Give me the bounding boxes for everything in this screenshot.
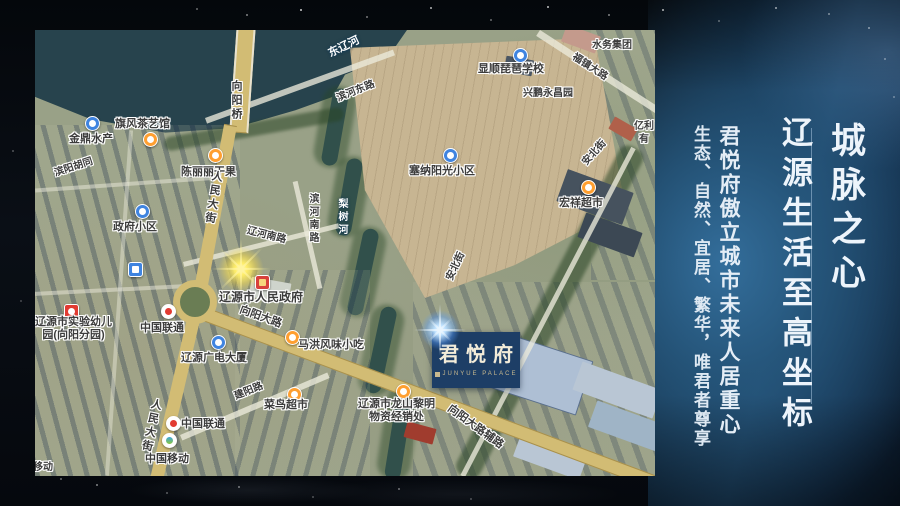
subline-junyuefu: 君悦府傲立城市未来人居重心 <box>713 125 743 437</box>
map-label-lishu-river: 梨树河 <box>334 198 349 237</box>
map-label-pipa-school: 显顺琵琶学校 <box>478 60 544 76</box>
materials-depot-poi-icon <box>396 384 411 399</box>
marketing-slide: { "panel": { "headline_right": "城脉之心", "… <box>0 0 900 506</box>
map-label-qifeng-teahouse: 旗风茶艺馆 <box>115 115 170 131</box>
map-label-longshan-depot: 辽源市龙山黎明物资经销处 <box>358 398 435 424</box>
map-label-kindergarten-line1: 辽源市实验幼儿 <box>35 316 112 328</box>
star-speckles <box>0 0 2 2</box>
teahouse-poi-icon <box>143 132 158 147</box>
subline-ecology: 生态、自然、宜居、繁华，唯君者尊享 <box>688 125 713 448</box>
sena-residential-poi-icon <box>443 148 458 163</box>
map-label-jinding-seafood: 金鼎水产 <box>69 130 113 146</box>
map-label-government-compound: 政府小区 <box>113 218 157 234</box>
china-mobile-poi-icon <box>162 433 177 448</box>
ground-haze <box>0 474 900 506</box>
residential-poi-icon <box>135 204 150 219</box>
roundabout <box>173 280 217 324</box>
map-label-kindergarten-line2: 园(向阳分园) <box>42 329 104 341</box>
headline-liaoyuan-benchmark: 辽源生活至高坐标 <box>772 116 817 436</box>
map-label-binhe-south-road: 滨河南路 <box>305 193 320 245</box>
map-label-longshan-line2: 物资经销处 <box>369 411 424 423</box>
map-label-china-unicom: 中国联通 <box>140 319 184 335</box>
junyuefu-badge-subtext: JUNYUE PALACE <box>435 371 518 377</box>
satellite-map[interactable]: 东辽河 滨河东路 水务集团 福镇大路 显顺琵琶学校 兴鹏永昌园 亿利有 向阳桥 … <box>35 30 655 476</box>
map-label-china-unicom: 中国联通 <box>181 415 225 431</box>
junyuefu-badge-subtext-text: JUNYUE PALACE <box>443 371 518 377</box>
supermarket-poi-icon <box>581 180 596 195</box>
seafood-shop-poi-icon <box>85 116 100 131</box>
dried-fruit-shop-poi-icon <box>208 148 223 163</box>
map-label-yili-partial: 亿利有 <box>634 120 654 146</box>
map-label-xiangyang-bridge: 向阳桥 <box>228 80 244 122</box>
headline-city-pulse: 城脉之心 <box>820 122 871 298</box>
palace-emblem-icon <box>435 372 440 377</box>
blue-square-poi-icon <box>128 262 143 277</box>
map-label-yili-line2: 有 <box>639 134 649 145</box>
map-label-longshan-line1: 辽源市龙山黎明 <box>358 398 435 410</box>
broadcast-tower-poi-icon <box>211 335 226 350</box>
map-label-kindergarten: 辽源市实验幼儿园(向阳分园) <box>35 316 112 342</box>
china-unicom-poi-icon <box>166 416 181 431</box>
china-unicom-poi-icon <box>161 304 176 319</box>
map-label-water-group: 水务集团 <box>592 36 632 51</box>
map-label-mahong-snacks: 马洪风味小吃 <box>298 336 364 352</box>
map-label-city-government: 辽源市人民政府 <box>219 288 303 305</box>
map-label-cainiao-supermarket: 菜鸟超市 <box>264 396 308 412</box>
map-label-hongxiang-supermarket: 宏祥超市 <box>559 194 603 210</box>
map-label-broadcast-building: 辽源广电大厦 <box>181 349 247 365</box>
map-label-xingpeng-garden: 兴鹏永昌园 <box>523 84 573 99</box>
map-label-yili-line1: 亿利 <box>634 121 654 132</box>
junyuefu-blue-flare-icon <box>420 310 460 350</box>
map-label-sena-sunshine: 塞纳阳光小区 <box>409 162 475 178</box>
map-label-mobile-fragment: 移动 <box>35 458 53 473</box>
